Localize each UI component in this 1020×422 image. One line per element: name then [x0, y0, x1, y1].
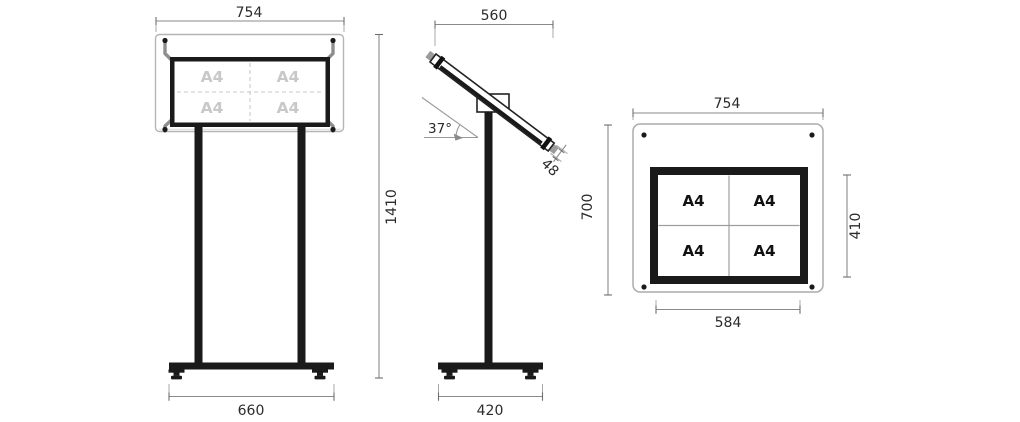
front-base-value: 660	[238, 403, 265, 419]
face-width-value: 754	[714, 96, 741, 112]
side-view: 560 37° 48	[422, 8, 568, 419]
face-screw-top-left	[641, 132, 646, 137]
front-base-dimension: 660	[169, 384, 334, 419]
side-angle-value: 37°	[428, 121, 452, 137]
front-foot-left	[169, 370, 185, 380]
front-leg-right	[298, 127, 306, 363]
side-base-bar	[438, 363, 543, 370]
front-base-bar	[169, 363, 334, 370]
face-a4-label: A4	[753, 192, 775, 210]
side-foot-front	[442, 370, 458, 380]
front-screw-top-left	[162, 38, 167, 43]
face-inner-height-dimension: 410	[843, 175, 864, 277]
front-screw-bottom-left	[162, 127, 167, 132]
front-width-value: 754	[236, 5, 263, 21]
front-a4-label: A4	[277, 68, 300, 86]
front-screw-top-right	[330, 38, 335, 43]
face-width-dimension: 754	[633, 96, 823, 120]
face-height-value: 700	[580, 194, 596, 221]
face-height-dimension: 700	[580, 125, 612, 295]
face-a4-label: A4	[753, 242, 775, 260]
face-screw-bottom-right	[809, 284, 814, 289]
front-leg-left	[195, 127, 203, 363]
side-base-value: 420	[477, 403, 504, 419]
face-inner-height-value: 410	[848, 213, 864, 240]
front-foot-right	[312, 370, 328, 380]
side-foot-back	[523, 370, 539, 380]
front-height-dimension: 1410	[375, 35, 400, 379]
front-height-value: 1410	[384, 189, 400, 225]
front-a4-label: A4	[201, 99, 224, 117]
side-angle-annotation: 37°	[422, 98, 478, 141]
face-screw-bottom-left	[641, 284, 646, 289]
face-screw-top-right	[809, 132, 814, 137]
face-a4-label: A4	[682, 192, 704, 210]
face-inner-width-value: 584	[715, 315, 742, 331]
side-width-value: 560	[481, 8, 508, 24]
front-screw-bottom-right	[330, 127, 335, 132]
face-view: 754 A4 A4 A4 A4 700 410	[580, 96, 864, 331]
front-a4-label: A4	[201, 68, 224, 86]
technical-drawing: 754 A4 A4 A4 A4	[0, 0, 1020, 422]
face-a4-label: A4	[682, 242, 704, 260]
side-post	[485, 112, 493, 364]
side-base-dimension: 420	[439, 384, 543, 419]
front-a4-label: A4	[277, 99, 300, 117]
side-width-dimension: 560	[435, 8, 553, 46]
face-inner-width-dimension: 584	[656, 300, 800, 331]
front-view: 754 A4 A4 A4 A4	[156, 5, 401, 419]
front-width-dimension: 754	[156, 5, 344, 32]
